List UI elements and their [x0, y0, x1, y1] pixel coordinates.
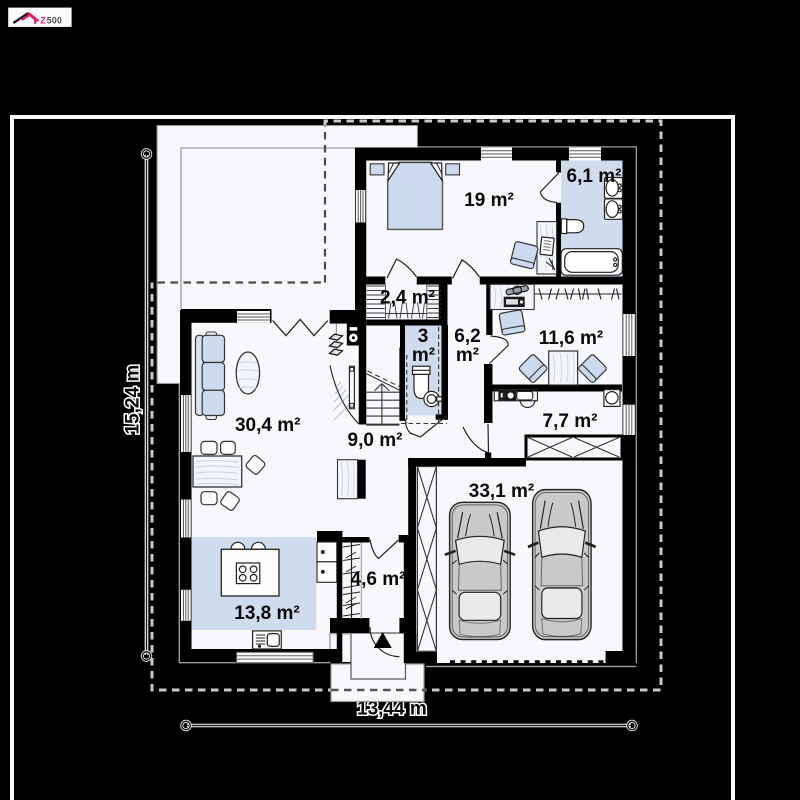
svg-text:9,0 m²: 9,0 m² [348, 430, 403, 451]
svg-text:11,6 m²: 11,6 m² [539, 328, 603, 349]
svg-text:2,4 m²: 2,4 m² [380, 288, 435, 309]
svg-text:15,24 m: 15,24 m [123, 365, 144, 435]
svg-text:19 m²: 19 m² [464, 190, 514, 211]
svg-text:13,8 m²: 13,8 m² [234, 603, 299, 624]
svg-text:m²: m² [412, 345, 435, 366]
svg-text:4,6 m²: 4,6 m² [351, 569, 406, 590]
svg-text:6,2: 6,2 [454, 326, 480, 347]
svg-text:7,7 m²: 7,7 m² [543, 411, 598, 432]
svg-text:Z: Z [40, 15, 46, 25]
svg-text:30,4 m²: 30,4 m² [235, 415, 300, 436]
svg-text:6,1 m²: 6,1 m² [567, 166, 622, 187]
svg-text:33,1 m²: 33,1 m² [469, 481, 534, 502]
svg-text:500: 500 [47, 15, 62, 25]
svg-text:3: 3 [418, 326, 429, 347]
svg-text:m²: m² [456, 345, 479, 366]
